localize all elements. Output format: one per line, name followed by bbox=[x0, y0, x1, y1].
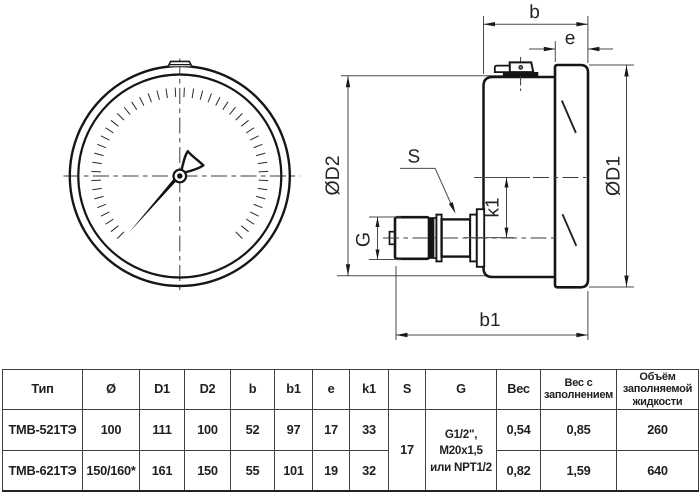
svg-text:b1: b1 bbox=[479, 310, 500, 331]
svg-text:G: G bbox=[353, 232, 375, 247]
svg-text:S: S bbox=[407, 147, 420, 168]
svg-text:k1: k1 bbox=[483, 197, 504, 217]
svg-text:b: b bbox=[529, 2, 540, 23]
svg-text:ØD2: ØD2 bbox=[322, 155, 344, 195]
svg-text:ØD1: ØD1 bbox=[603, 156, 625, 196]
svg-text:e: e bbox=[565, 28, 576, 49]
